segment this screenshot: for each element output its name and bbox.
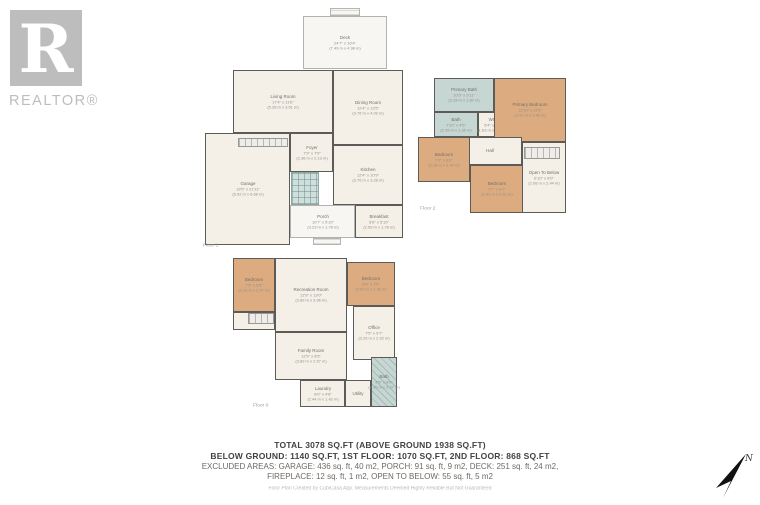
room-bedroom: Bedroom7'2" x 8'0"(2.18 m x 2.44 m) — [418, 137, 470, 182]
summary-excluded-2: FIREPLACE: 12 sq. ft, 1 m2, OPEN TO BELO… — [0, 472, 760, 482]
north-arrow-shape — [716, 454, 746, 498]
room-label: Deck24'7" x 16'4"(7.49 m x 4.98 m) — [329, 34, 360, 50]
room-laundry: Laundry8'0" x 4'8"(2.44 m x 1.42 m) — [300, 380, 345, 407]
steps-feature — [313, 238, 341, 245]
room-label: Family Room12'9" x 8'5"(3.89 m x 2.57 m) — [295, 348, 326, 364]
room-name: Living Room — [267, 93, 298, 99]
room-primary-bath: Primary Bath10'9" x 5'11"(3.28 m x 1.80 … — [434, 78, 494, 112]
room-name: Porch — [307, 213, 338, 219]
room-bedroom: Bedroom7'5" x 9'5"(2.26 m x 2.87 m) — [233, 258, 275, 312]
room-dimensions: 24'7" x 16'4" — [329, 40, 360, 45]
room-name: Bedroom — [428, 151, 459, 157]
room-dimensions: (3.89 m x 3.96 m) — [293, 298, 328, 303]
room-dimensions: 10'7" x 5'10" — [307, 219, 338, 224]
room-label: Primary Bath10'9" x 5'11"(3.28 m x 1.80 … — [448, 87, 479, 103]
room-name: Primary Bedroom — [512, 102, 547, 108]
stairs-teal-feature — [291, 172, 319, 205]
room-label: Dining Room12'4" x 13'5"(3.76 m x 4.09 m… — [352, 99, 383, 115]
room-dimensions: (2.44 m x 1.42 m) — [307, 396, 338, 401]
plan-floor-2: Primary Bath10'9" x 5'11"(3.28 m x 1.80 … — [418, 73, 568, 215]
room-label: Garage19'5" x 21'11"(5.92 m x 6.68 m) — [232, 181, 263, 197]
room-dimensions: 6'10" x 8'0" — [528, 175, 559, 180]
room-label: Recreation Room12'9" x 13'0"(3.89 m x 3.… — [293, 287, 328, 303]
room-dimensions: (3.89 m x 2.57 m) — [295, 359, 326, 364]
room-name: Foyer — [296, 144, 327, 150]
room-label: Porch10'7" x 5'10"(3.23 m x 1.78 m) — [307, 213, 338, 229]
room-bath: Bath7'10" x 4'5"(2.39 m x 1.35 m) — [434, 112, 478, 137]
realtor-logo-initial: R — [19, 10, 75, 88]
stairs-feature — [524, 147, 560, 159]
room-dimensions: (3.76 m x 3.28 m) — [352, 178, 383, 183]
room-dining-room: Dining Room12'4" x 13'5"(3.76 m x 4.09 m… — [333, 70, 403, 145]
realtor-wordmark: REALTOR® — [9, 93, 99, 109]
room-name: Dining Room — [352, 99, 383, 105]
room-bedroom: Bedroom8'6" x 7'9"(2.59 m x 2.36 m) — [347, 262, 395, 306]
room-office: Office7'5" x 9'7"(2.26 m x 2.92 m) — [353, 306, 395, 360]
room-dimensions: 7'10" x 4'5" — [440, 122, 471, 127]
room-label: Bath7'10" x 4'5"(2.39 m x 1.35 m) — [440, 116, 471, 132]
room-dimensions: (2.26 m x 2.92 m) — [358, 336, 389, 341]
room-dimensions: 8'0" x 4'8" — [307, 391, 338, 396]
room-name: Recreation Room — [293, 287, 328, 293]
room-bath: Bath4'5" x 8'9"(1.35 m x 2.67 m) — [371, 357, 397, 407]
room-dimensions: (3.23 m x 1.78 m) — [307, 224, 338, 229]
room-name: Utility — [353, 391, 364, 397]
room-name: Open To Below — [528, 169, 559, 175]
room-label: Foyer7'9" x 7'0"(2.36 m x 2.13 m) — [296, 144, 327, 160]
room-name: Laundry — [307, 385, 338, 391]
room-dimensions: (7.49 m x 4.98 m) — [329, 45, 360, 50]
room-garage: Garage19'5" x 21'11"(5.92 m x 6.68 m) — [205, 133, 290, 245]
room-dimensions: 7'2" x 8'0" — [428, 157, 459, 162]
room-dimensions: (2.92 m x 2.62 m) — [481, 192, 512, 197]
summary-block: TOTAL 3078 SQ.FT (ABOVE GROUND 1938 SQ.F… — [0, 440, 760, 492]
room-label: Bedroom7'2" x 8'0"(2.18 m x 2.44 m) — [428, 151, 459, 167]
room-living-room: Living Room17'4" x 11'6"(5.28 m x 3.51 m… — [233, 70, 333, 133]
floor-label: Floor 1 — [203, 242, 218, 248]
plan-floor-1: Deck24'7" x 16'4"(7.49 m x 4.98 m)Living… — [195, 8, 410, 250]
summary-excluded-1: EXCLUDED AREAS: GARAGE: 436 sq. ft, 40 m… — [0, 462, 760, 472]
floor-label: Floor 0 — [253, 402, 268, 408]
room-label: Hall — [486, 148, 494, 154]
stairs-feature — [238, 138, 288, 147]
room-dimensions: (2.39 m x 1.35 m) — [440, 127, 471, 132]
room-dimensions: (2.26 m x 2.87 m) — [238, 288, 269, 293]
room-breakfast: Breakfast8'6" x 5'10"(2.59 m x 1.78 m) — [355, 205, 403, 238]
room-porch: Porch10'7" x 5'10"(3.23 m x 1.78 m) — [290, 205, 355, 238]
room-dimensions: (2.59 m x 2.36 m) — [355, 287, 386, 292]
room-dimensions: 12'4" x 13'5" — [352, 105, 383, 110]
room-bedroom: Bedroom9'7" x 8'7"(2.92 m x 2.62 m) — [470, 165, 524, 213]
room-name: Hall — [486, 148, 494, 154]
room-label: Kitchen12'4" x 10'9"(3.76 m x 3.28 m) — [352, 167, 383, 183]
room-utility: Utility — [345, 380, 371, 407]
room-dimensions: 7'9" x 7'0" — [296, 150, 327, 155]
summary-floors: BELOW GROUND: 1140 SQ.FT, 1ST FLOOR: 107… — [0, 451, 760, 462]
room-dimensions: 8'6" x 5'10" — [363, 219, 394, 224]
room-label: Laundry8'0" x 4'8"(2.44 m x 1.42 m) — [307, 385, 338, 401]
room-label: Breakfast8'6" x 5'10"(2.59 m x 1.78 m) — [363, 213, 394, 229]
room-label: Open To Below6'10" x 8'0"(2.08 m x 2.44 … — [528, 169, 559, 185]
room-dimensions: (1.35 m x 2.67 m) — [368, 385, 399, 390]
room-name: Breakfast — [363, 213, 394, 219]
room-dimensions: (5.92 m x 6.68 m) — [232, 192, 263, 197]
room-recreation-room: Recreation Room12'9" x 13'0"(3.89 m x 3.… — [275, 258, 347, 332]
steps-feature — [330, 8, 360, 16]
room-name: Family Room — [295, 348, 326, 354]
north-label: N — [744, 454, 754, 464]
room-dimensions: (2.36 m x 2.13 m) — [296, 155, 327, 160]
room-dimensions: (3.76 m x 4.09 m) — [352, 110, 383, 115]
room-label: Living Room17'4" x 11'6"(5.28 m x 3.51 m… — [267, 93, 298, 109]
plan-floor-0: Bedroom7'5" x 9'5"(2.26 m x 2.87 m)Recre… — [228, 252, 400, 412]
room-name: Bath — [440, 116, 471, 122]
room-name: Primary Bath — [448, 87, 479, 93]
floor-label: Floor 2 — [420, 205, 435, 211]
room-label: Bath4'5" x 8'9"(1.35 m x 2.67 m) — [368, 374, 399, 390]
room-family-room: Family Room12'9" x 8'5"(3.89 m x 2.57 m) — [275, 332, 347, 380]
room-label: Office7'5" x 9'7"(2.26 m x 2.92 m) — [358, 325, 389, 341]
stairs-feature — [248, 313, 274, 324]
room-label: Bedroom7'5" x 9'5"(2.26 m x 2.87 m) — [238, 277, 269, 293]
room-deck: Deck24'7" x 16'4"(7.49 m x 4.98 m) — [303, 16, 387, 69]
room-dimensions: (2.08 m x 2.44 m) — [528, 180, 559, 185]
room-label: Utility — [353, 391, 364, 397]
room-primary-bedroom: Primary Bedroom12'10" x 11'5"(3.91 m x 3… — [494, 78, 566, 142]
room-label: Bedroom8'6" x 7'9"(2.59 m x 2.36 m) — [355, 276, 386, 292]
realtor-logo: R REALTOR® — [8, 8, 104, 110]
summary-credit: Floor Plan Created by CubiCasa App. Meas… — [57, 486, 703, 491]
room-label: Bedroom9'7" x 8'7"(2.92 m x 2.62 m) — [481, 181, 512, 197]
room-name: Deck — [329, 34, 360, 40]
room-dimensions: (3.28 m x 1.80 m) — [448, 98, 479, 103]
floorplan-page: R REALTOR® Deck24'7" x 16'4"(7.49 m x 4.… — [0, 0, 760, 505]
room-dimensions: (5.28 m x 3.51 m) — [267, 104, 298, 109]
room-dimensions: 17'4" x 11'6" — [267, 99, 298, 104]
room-label: Primary Bedroom12'10" x 11'5"(3.91 m x 3… — [512, 102, 547, 118]
room-kitchen: Kitchen12'4" x 10'9"(3.76 m x 3.28 m) — [333, 145, 403, 205]
room-dimensions: (2.59 m x 1.78 m) — [363, 224, 394, 229]
room-dimensions: (2.18 m x 2.44 m) — [428, 162, 459, 167]
north-arrow: N — [710, 448, 760, 502]
summary-total: TOTAL 3078 SQ.FT (ABOVE GROUND 1938 SQ.F… — [0, 440, 760, 451]
room-dimensions: (3.91 m x 3.48 m) — [512, 113, 547, 118]
room-foyer: Foyer7'9" x 7'0"(2.36 m x 2.13 m) — [290, 133, 333, 172]
